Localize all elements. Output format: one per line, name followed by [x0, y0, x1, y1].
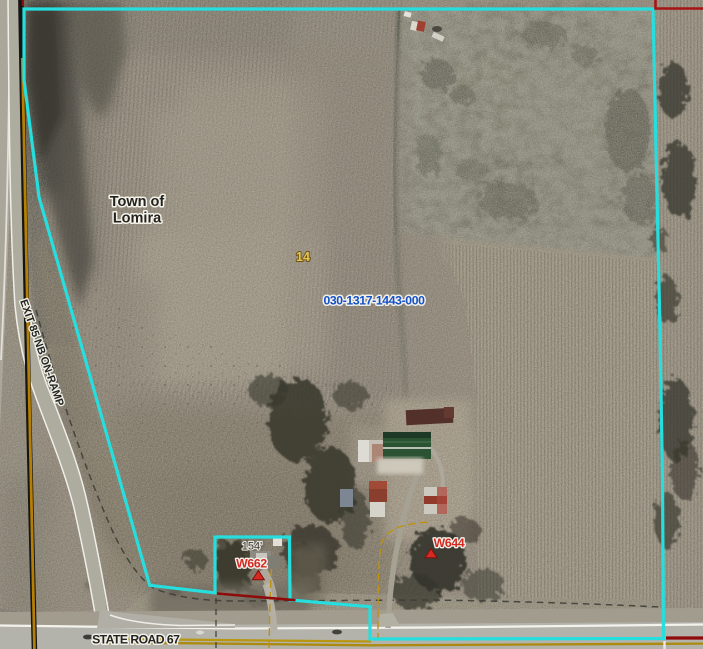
svg-text:STATE ROAD 67: STATE ROAD 67	[92, 633, 180, 647]
svg-text:030-1317-1443-000: 030-1317-1443-000	[323, 294, 425, 308]
svg-text:14: 14	[296, 250, 310, 264]
svg-text:W644: W644	[434, 536, 465, 550]
svg-text:Town of: Town of	[110, 194, 165, 210]
svg-text:154': 154'	[242, 541, 262, 553]
svg-text:Lomira: Lomira	[113, 211, 162, 227]
svg-text:W662: W662	[236, 557, 267, 571]
